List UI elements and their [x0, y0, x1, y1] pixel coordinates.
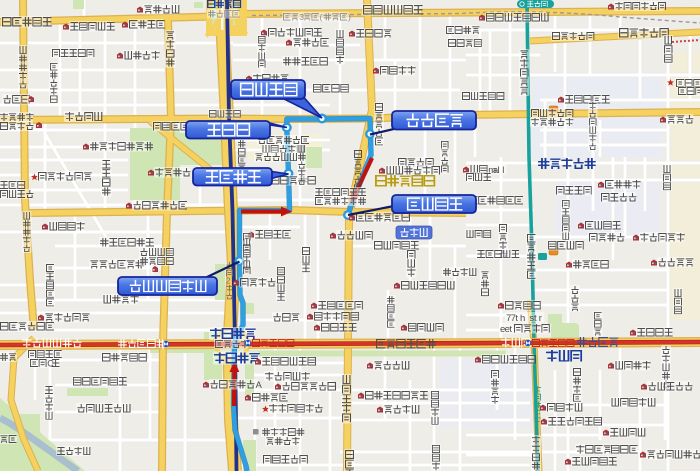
svg-text:h: h	[520, 313, 525, 324]
svg-text:t: t	[534, 313, 537, 324]
svg-text:): )	[348, 12, 351, 22]
svg-text:l: l	[502, 165, 504, 176]
svg-text:t: t	[509, 324, 512, 335]
svg-text:A: A	[256, 380, 263, 391]
svg-text:(: (	[320, 12, 323, 22]
svg-text:l: l	[498, 165, 500, 176]
svg-text:2: 2	[226, 277, 231, 286]
svg-text:3: 3	[299, 12, 304, 22]
svg-text:t: t	[515, 313, 518, 324]
svg-text:r: r	[539, 313, 542, 324]
